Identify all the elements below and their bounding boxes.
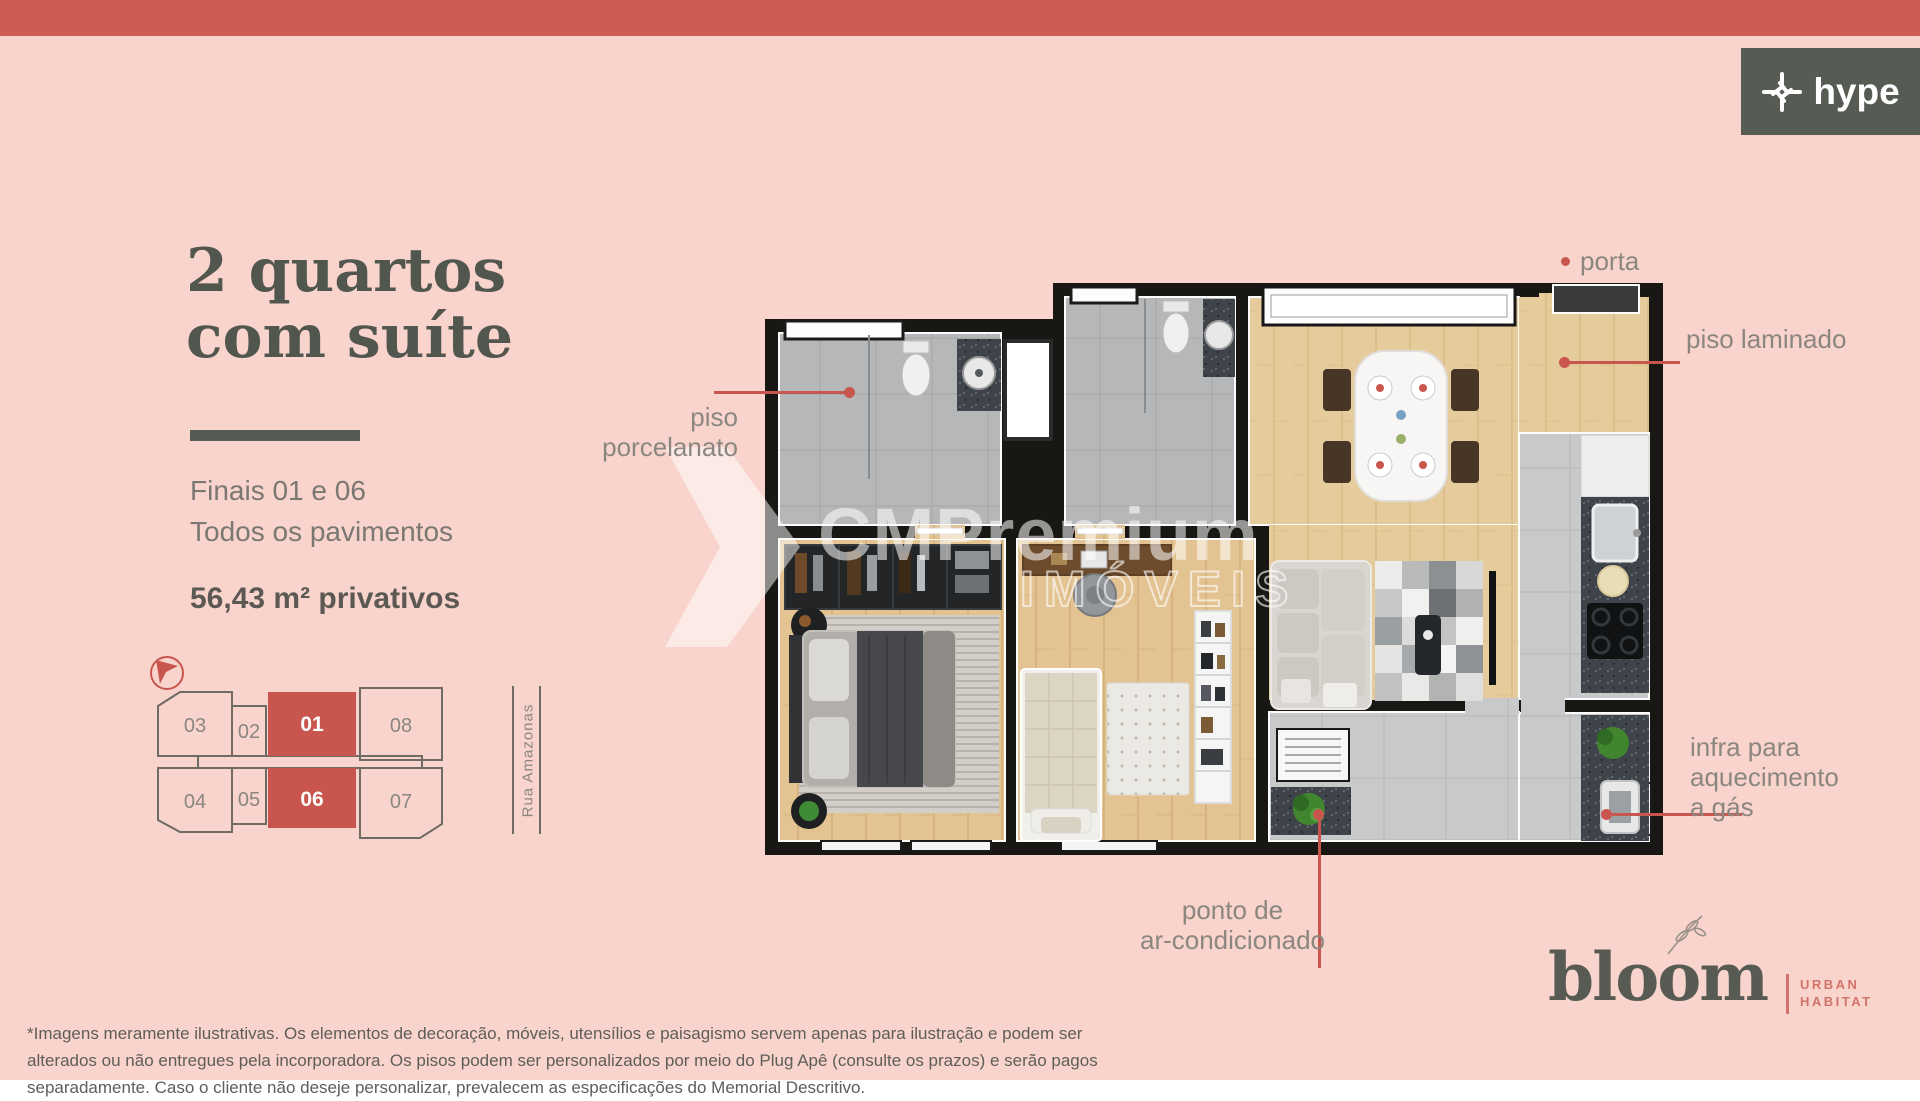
kitchen-service-passage bbox=[1521, 697, 1565, 715]
piso-porcelanato-label: piso porcelanato bbox=[560, 402, 738, 462]
bloom-tagline: URBAN HABITAT bbox=[1800, 976, 1873, 1010]
porta-dot bbox=[1561, 257, 1570, 266]
sofa-pillow-1 bbox=[1281, 679, 1311, 703]
ac-point-dot bbox=[1313, 809, 1324, 820]
bloom-tag-line2: HABITAT bbox=[1800, 993, 1873, 1010]
disclaimer-line3: separadamente. Caso o cliente não deseje… bbox=[27, 1074, 1098, 1101]
bath2-sink bbox=[1205, 321, 1233, 349]
bedroom2-cushion bbox=[1041, 817, 1081, 833]
bloom-tag-line1: URBAN bbox=[1800, 976, 1873, 993]
brochure-page: hype 2 quartos com suíte Finais 01 e 06 … bbox=[0, 0, 1920, 1080]
bedroom2-duvet bbox=[1025, 673, 1097, 813]
unit-floors: Todos os pavimentos bbox=[190, 511, 453, 552]
piso-laminado-dot bbox=[1559, 357, 1570, 368]
disclaimer: *Imagens meramente ilustrativas. Os elem… bbox=[27, 1020, 1098, 1101]
suite-pillow-2 bbox=[809, 717, 849, 779]
suite-bath-window bbox=[785, 321, 903, 339]
infra-gas-line2: aquecimento bbox=[1690, 762, 1839, 792]
piso-laminado-line bbox=[1565, 361, 1680, 364]
key-plan-unit-01: 01 bbox=[300, 713, 324, 736]
suite-window-1 bbox=[821, 841, 901, 851]
key-plan-unit-03: 03 bbox=[184, 715, 206, 737]
coffee-table bbox=[1415, 615, 1441, 675]
cm-arrow-watermark bbox=[665, 447, 800, 647]
porta-label: porta bbox=[1580, 246, 1639, 276]
kitchen-plant-shade bbox=[1597, 729, 1613, 745]
key-plan-unit-05: 05 bbox=[238, 789, 260, 811]
key-plan-unit-06: 06 bbox=[300, 788, 323, 811]
suite-throw bbox=[923, 631, 955, 787]
suite-blanket bbox=[857, 631, 923, 787]
hype-logo-box: hype bbox=[1741, 48, 1920, 135]
gas-heater-panel bbox=[1609, 791, 1631, 823]
ac-point-line1: ponto de bbox=[1130, 895, 1335, 925]
piso-porcelanato-line bbox=[714, 391, 847, 394]
street-line-right bbox=[539, 686, 541, 834]
infra-gas-line3: a gás bbox=[1690, 792, 1839, 822]
suite-side-table-items bbox=[799, 615, 811, 627]
key-plan-unit-07: 07 bbox=[390, 791, 412, 813]
infra-gas-label: infra para aquecimento a gás bbox=[1690, 732, 1839, 822]
dining-table bbox=[1355, 351, 1447, 501]
bloom-divider-bar bbox=[1786, 974, 1789, 1014]
bedroom2-window bbox=[1061, 841, 1157, 851]
hype-wordmark: hype bbox=[1813, 73, 1899, 110]
private-area: 56,43 m² privativos bbox=[190, 582, 460, 616]
ac-point-label: ponto de ar-condicionado bbox=[1130, 895, 1335, 955]
bloom-wordmark: bloom bbox=[1548, 944, 1767, 1010]
suite-toilet bbox=[902, 354, 930, 396]
disclaimer-line1: *Imagens meramente ilustrativas. Os elem… bbox=[27, 1020, 1098, 1047]
hype-pinwheel-icon bbox=[1761, 71, 1803, 113]
bath2-toilet-tank bbox=[1163, 301, 1189, 312]
entry-door bbox=[1553, 285, 1639, 313]
fruit-bowl bbox=[1598, 566, 1628, 596]
suite-side-plant bbox=[799, 801, 819, 821]
bath2-window bbox=[1071, 287, 1137, 303]
coffee-table-deco bbox=[1423, 630, 1433, 640]
key-plan: 03 02 01 08 04 05 06 07 bbox=[150, 680, 485, 848]
kitchen-cabinet bbox=[1581, 435, 1649, 497]
shaft bbox=[1005, 341, 1051, 439]
piso-porcelanato-dot bbox=[844, 387, 855, 398]
suite-sink-drain bbox=[975, 369, 983, 377]
suite-window-2 bbox=[911, 841, 991, 851]
title-divider bbox=[190, 430, 360, 441]
key-plan-unit-04: 04 bbox=[184, 791, 206, 813]
piso-laminado-label: piso laminado bbox=[1686, 324, 1846, 354]
key-plan-unit-08: 08 bbox=[390, 715, 412, 737]
suite-pillow-1 bbox=[809, 639, 849, 701]
unit-finals: Finais 01 e 06 bbox=[190, 470, 453, 511]
top-accent-bar bbox=[0, 0, 1920, 36]
suite-toilet-tank bbox=[903, 341, 929, 353]
bedroom2-rug bbox=[1107, 683, 1189, 795]
unit-info: Finais 01 e 06 Todos os pavimentos bbox=[190, 470, 453, 552]
disclaimer-line2: alterados ou não entregues pela incorpor… bbox=[27, 1047, 1098, 1074]
living-window-pane bbox=[1271, 295, 1507, 317]
kitchen-faucet bbox=[1633, 529, 1641, 537]
key-plan-unit-02: 02 bbox=[238, 721, 260, 743]
planter-plant-shade bbox=[1293, 795, 1309, 811]
title-line-1: 2 quartos bbox=[186, 238, 513, 304]
page-title: 2 quartos com suíte bbox=[186, 238, 513, 370]
ac-point-line2: ar-condicionado bbox=[1130, 925, 1335, 955]
infra-gas-dot bbox=[1601, 809, 1612, 820]
bath2-toilet bbox=[1163, 313, 1189, 353]
street-name: Rua Amazonas bbox=[520, 691, 537, 831]
street-line-left bbox=[512, 686, 514, 834]
tv-panel bbox=[1489, 571, 1496, 685]
watermark-imoveis: IMÓVEIS bbox=[1020, 560, 1298, 618]
suite-headboard bbox=[789, 635, 803, 783]
sofa-pillow-2 bbox=[1323, 683, 1357, 707]
infra-gas-line1: infra para bbox=[1690, 732, 1839, 762]
title-line-2: com suíte bbox=[186, 304, 513, 370]
kitchen-sink bbox=[1593, 505, 1637, 561]
